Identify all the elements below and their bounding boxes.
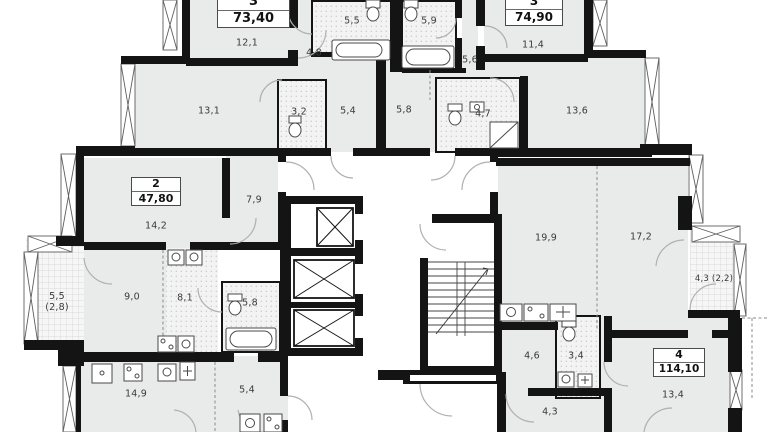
window-icon [730,370,742,410]
room-area-label: 5,4 [340,107,356,118]
room-area-label: 14,9 [125,390,147,401]
fridge-icon [92,364,112,383]
room-area-label: 4,3 (2,2) [695,275,733,285]
room-area-label: 5,8 [242,299,258,310]
stove-icon [158,336,176,352]
apartment-area: 114,10 [654,363,704,376]
room-area-label: 3,4 [568,352,584,363]
toilet-icon [228,294,242,315]
room-area-label: 5,9 [421,17,437,28]
washer-icon [186,250,202,265]
stove-icon [124,364,142,381]
toilet-icon [562,320,576,341]
room-area-label: 4,6 [524,352,540,363]
room-area-label: 5,5 [344,17,360,28]
room-area-label: 17,2 [630,233,652,244]
apartment-rooms-count: 4 [654,349,704,363]
window-icon [734,244,746,316]
window-icon [645,58,659,146]
sink-icon [180,362,195,380]
room-area-label: 11,4 [522,41,544,52]
window-icon [61,154,76,238]
toilet-icon [404,0,418,21]
sink-icon [500,304,522,321]
bathtub-icon [226,328,276,350]
washer-icon [558,372,574,387]
bathtub-icon [402,46,454,68]
toilet-icon [366,0,380,21]
room-area-label: 4,7 [475,110,491,121]
floor-plan: 12,1 5,5 5,9 4,8 11,4 5,6 13,1 3,2 5,4 5… [0,0,768,432]
elevator-icon [294,310,354,346]
stove-icon [524,304,548,321]
stove-icon [264,414,282,432]
bathtub-icon [332,40,390,60]
elevator-icon [294,260,354,298]
room-area-label: 12,1 [236,39,258,50]
room-area-label: 14,2 [145,222,167,233]
shower-icon [490,122,518,148]
sink-icon [578,374,592,387]
toilet-icon [448,104,462,125]
washer-icon [158,364,176,381]
apartment-area: 47,80 [132,192,180,206]
toilet-icon [289,116,301,137]
room-area-label: 9,0 [124,293,140,304]
apartment-rooms-count: 3 [506,0,562,10]
apartment-label: 2 47,80 [131,177,181,206]
window-icon [163,0,177,50]
elevator-icons [294,208,354,346]
room-area-label: 5,8 [396,106,412,117]
room-area-label: 19,9 [535,234,557,245]
room-area-label: 5,5 (2,8) [45,292,69,314]
window-icon [63,366,76,432]
room-area-label: 5,4 [239,386,255,397]
window-icon [593,0,607,46]
washer-icon [240,414,260,432]
window-icon [121,64,135,146]
room-area-label: 13,1 [198,107,220,118]
elevator-icon [317,208,353,246]
room-area-label: 13,6 [566,107,588,118]
apartment-area: 73,40 [218,11,289,27]
apartment-area: 74,90 [506,10,562,25]
counter-icon [550,304,576,321]
room-area-label: 3,2 [291,108,307,119]
apartment-rooms-count: 2 [132,178,180,192]
window-icon [24,252,38,344]
window-icon [692,226,740,242]
washer-icon [178,336,194,352]
apartment-label: 3 73,40 [217,0,290,28]
room-area-label: 4,3 [542,408,558,419]
staircase-icon [428,262,494,336]
room-area-label: 5,6 [462,56,478,67]
room-area-label: 7,9 [246,196,262,207]
room-area-label: 8,1 [177,294,193,305]
washer-icon [168,250,184,265]
room-area-label: 13,4 [662,391,684,402]
apartment-label: 3 74,90 [505,0,563,26]
apartment-rooms-count: 3 [218,0,289,11]
apartment-label: 4 114,10 [653,348,705,377]
room-area-label: 4,8 [306,49,322,60]
double-door [410,375,496,381]
